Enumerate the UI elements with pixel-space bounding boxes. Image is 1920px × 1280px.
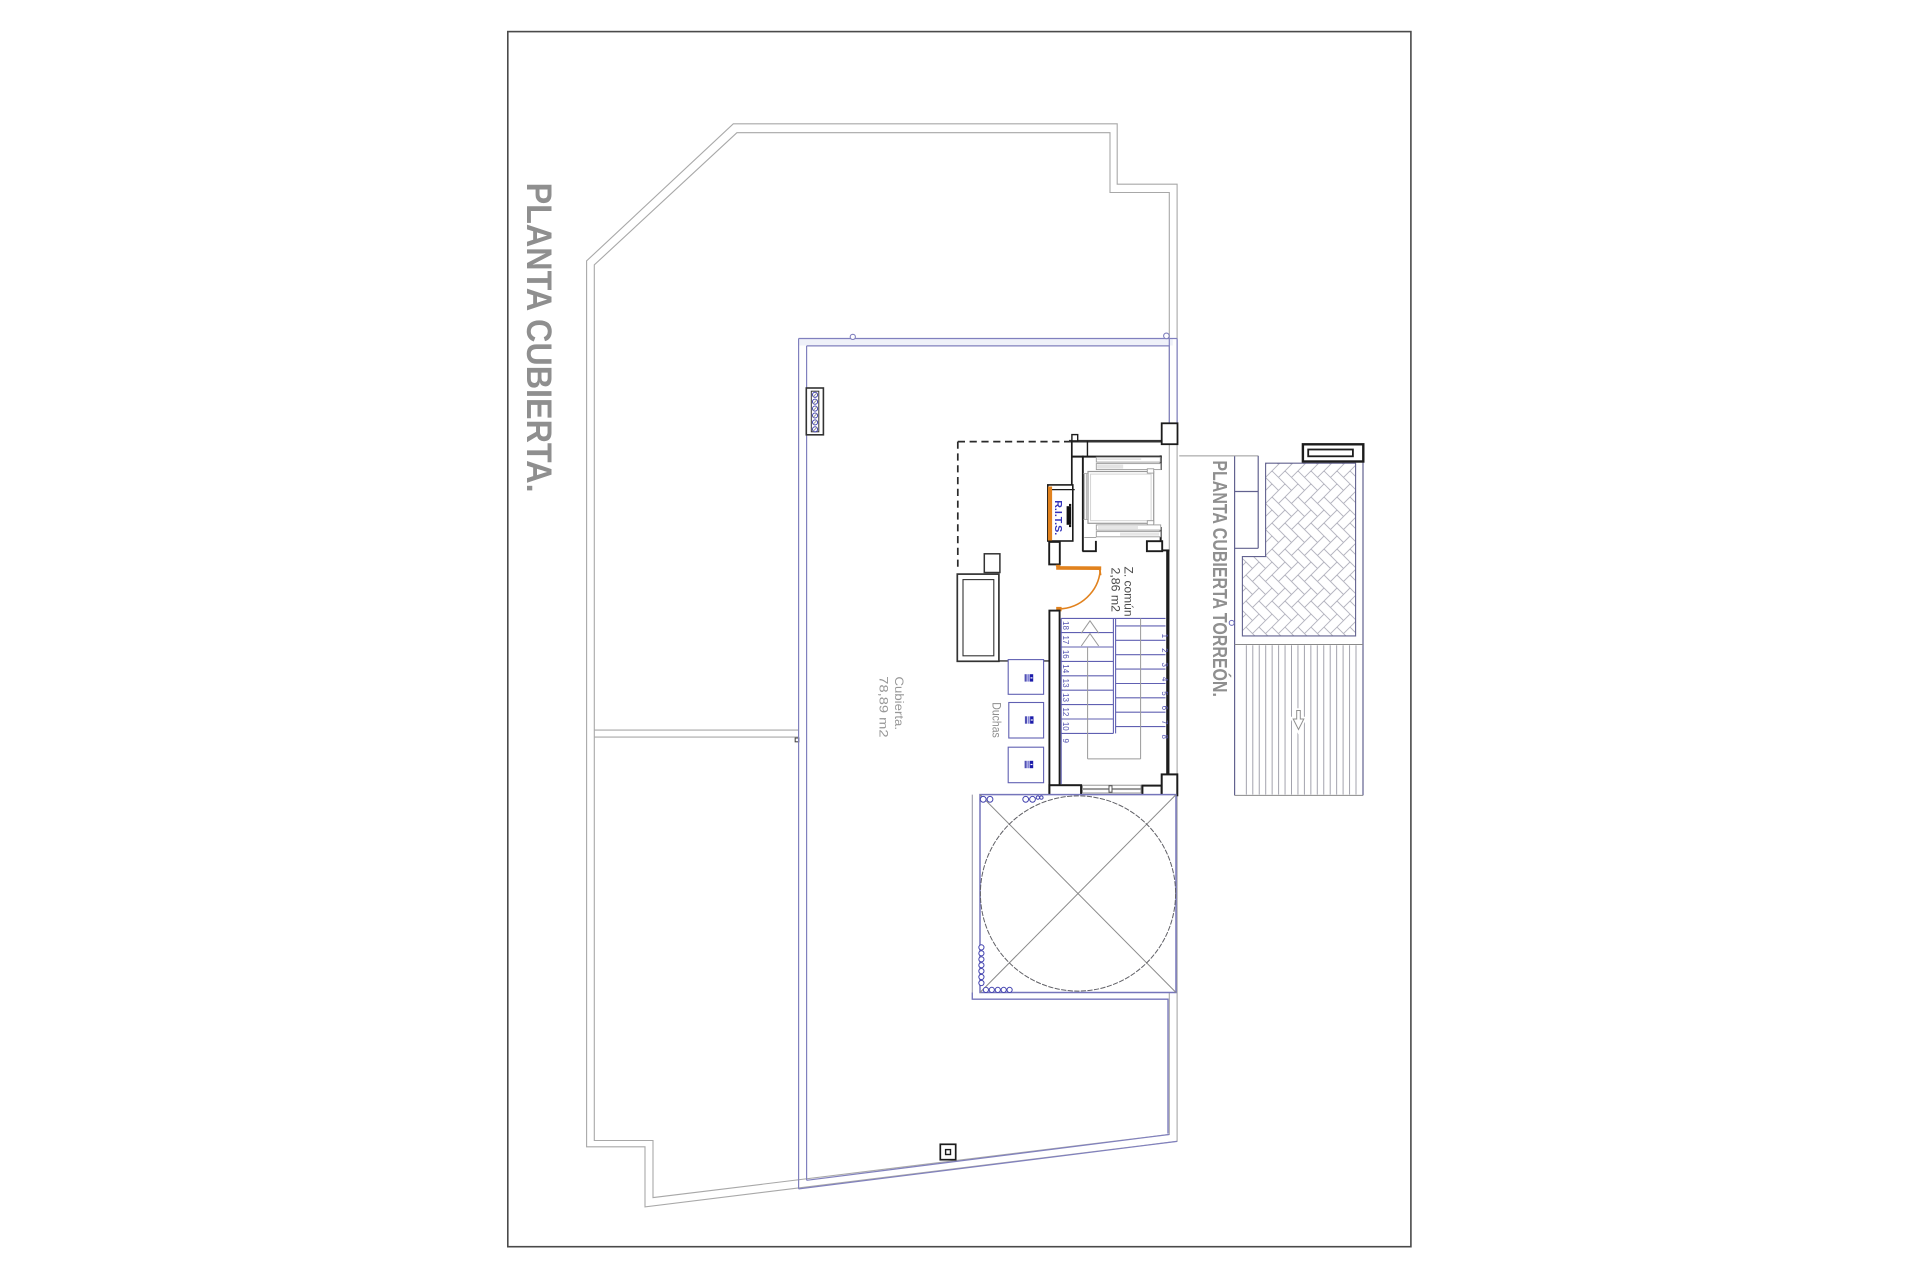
svg-text:16: 16 (1061, 650, 1070, 659)
svg-text:10: 10 (1061, 722, 1070, 731)
svg-text:5: 5 (1160, 691, 1169, 696)
svg-text:1: 1 (1160, 634, 1169, 639)
svg-text:Z. común: Z. común (1122, 567, 1134, 617)
svg-text:2,86 m2: 2,86 m2 (1108, 568, 1120, 613)
svg-text:17: 17 (1061, 635, 1070, 644)
svg-text:PLANTA CUBIERTA.: PLANTA CUBIERTA. (519, 183, 558, 493)
svg-text:Duchas: Duchas (990, 702, 1002, 738)
svg-text:78,89 m2: 78,89 m2 (877, 676, 889, 737)
svg-text:12: 12 (1061, 707, 1070, 716)
svg-text:9: 9 (1061, 738, 1070, 743)
svg-text:13: 13 (1061, 693, 1070, 702)
svg-text:Cubierta.: Cubierta. (892, 677, 904, 731)
svg-text:PLANTA CUBIERTA TORREÓN.: PLANTA CUBIERTA TORREÓN. (1208, 460, 1232, 697)
svg-text:6: 6 (1160, 706, 1169, 711)
svg-text:2: 2 (1160, 648, 1169, 653)
svg-text:14: 14 (1061, 664, 1070, 673)
svg-text:8: 8 (1160, 734, 1169, 739)
svg-text:13: 13 (1061, 679, 1070, 688)
svg-text:R.I.T.S.: R.I.T.S. (1052, 500, 1063, 535)
svg-text:7: 7 (1160, 720, 1169, 725)
svg-text:18: 18 (1061, 621, 1070, 630)
svg-text:4: 4 (1160, 677, 1169, 682)
svg-text:3: 3 (1160, 662, 1169, 667)
